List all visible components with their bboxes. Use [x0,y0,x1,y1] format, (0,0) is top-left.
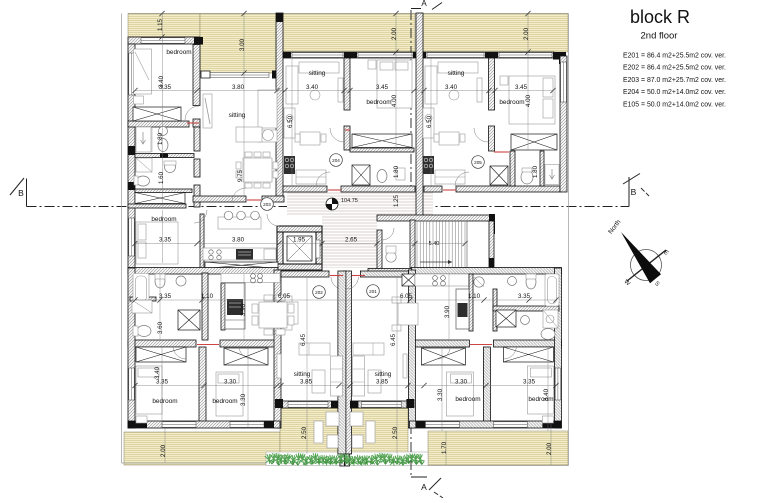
svg-text:9.75: 9.75 [237,169,244,182]
svg-text:1.25: 1.25 [393,194,400,207]
svg-text:bedroom: bedroom [152,398,177,405]
svg-text:6.50: 6.50 [287,115,294,128]
svg-text:bedroom: bedroom [151,216,176,223]
svg-text:1.70: 1.70 [441,441,448,454]
svg-text:sitting: sitting [375,371,392,378]
svg-text:B: B [631,187,637,197]
svg-text:2.00: 2.00 [546,442,553,455]
svg-text:A: A [421,0,427,8]
svg-text:bedroom: bedroom [499,99,524,106]
svg-text:3.30: 3.30 [455,379,468,386]
svg-text:3.40: 3.40 [154,366,161,379]
svg-text:sitting: sitting [309,70,326,77]
svg-text:1.60: 1.60 [158,171,165,184]
svg-text:bedroom: bedroom [166,49,191,56]
svg-text:3.40: 3.40 [445,84,458,91]
svg-text:4.00: 4.00 [391,94,398,107]
svg-text:6.05: 6.05 [400,293,413,300]
svg-text:B: B [18,188,24,198]
svg-text:1.10: 1.10 [468,293,481,300]
svg-text:2.00: 2.00 [391,27,398,40]
svg-text:205: 205 [474,160,482,165]
svg-text:E202 = 86.4 m2+25.5m2 cov. ver: E202 = 86.4 m2+25.5m2 cov. ver. [623,65,726,72]
svg-text:bedroom: bedroom [455,396,480,403]
svg-text:6.45: 6.45 [300,333,307,346]
svg-text:201: 201 [369,289,377,294]
svg-text:3.30: 3.30 [224,379,237,386]
svg-text:3.45: 3.45 [376,84,389,91]
svg-text:3.30: 3.30 [437,388,444,401]
svg-text:3.30: 3.30 [240,393,247,406]
svg-text:E203 = 87.0 m2+25.7m2 cov. ver: E203 = 87.0 m2+25.7m2 cov. ver. [623,77,726,84]
svg-text:E105 = 50.0 m2+14.0m2 cov. ver: E105 = 50.0 m2+14.0m2 cov. ver. [623,101,726,108]
svg-text:2.50: 2.50 [301,426,308,439]
svg-text:3.80: 3.80 [232,237,245,244]
svg-text:202: 202 [315,290,323,295]
svg-text:203: 203 [263,202,271,207]
svg-text:1.10: 1.10 [201,293,214,300]
svg-text:A: A [421,482,427,492]
svg-text:bedroom: bedroom [528,396,553,403]
svg-text:3.35: 3.35 [518,293,531,300]
svg-text:3.00: 3.00 [239,38,246,51]
svg-text:1.80: 1.80 [393,165,400,178]
svg-text:3.45: 3.45 [515,84,528,91]
svg-text:3.60: 3.60 [157,321,164,334]
svg-text:6.50: 6.50 [426,115,433,128]
svg-text:2.00: 2.00 [160,444,167,457]
svg-text:3.90: 3.90 [444,305,451,318]
svg-text:1.80: 1.80 [157,132,164,145]
svg-text:3.35: 3.35 [159,237,172,244]
svg-text:104.75: 104.75 [341,198,358,204]
svg-text:4.00: 4.00 [525,94,532,107]
svg-text:3.80: 3.80 [232,84,245,91]
svg-text:5.40: 5.40 [429,241,440,247]
svg-text:sitting: sitting [229,112,246,119]
svg-text:1.15: 1.15 [157,18,164,31]
svg-text:2.50: 2.50 [392,426,399,439]
svg-text:E201 = 86.4 m2+25.5m2 cov. ver: E201 = 86.4 m2+25.5m2 cov. ver. [623,53,726,60]
svg-text:sitting: sitting [448,70,465,77]
svg-text:E204 = 50.0 m2+14.0m2 cov. ver: E204 = 50.0 m2+14.0m2 cov. ver. [623,89,726,96]
svg-text:1.80: 1.80 [532,165,539,178]
svg-text:6.45: 6.45 [390,333,397,346]
svg-text:3.40: 3.40 [306,84,319,91]
svg-text:1.95: 1.95 [293,237,306,244]
svg-text:3.35: 3.35 [523,379,536,386]
svg-text:3.40: 3.40 [158,75,165,88]
svg-text:3.35: 3.35 [159,293,172,300]
svg-text:6.05: 6.05 [278,293,291,300]
svg-text:bedroom: bedroom [366,99,391,106]
svg-text:2.65: 2.65 [345,237,358,244]
svg-text:2.00: 2.00 [523,27,530,40]
svg-text:2nd floor: 2nd floor [641,31,678,42]
svg-text:3.85: 3.85 [300,379,313,386]
svg-text:204: 204 [332,158,340,163]
svg-text:block R: block R [630,7,690,27]
svg-text:3.85: 3.85 [376,379,389,386]
svg-text:sitting: sitting [294,371,311,378]
svg-text:bedroom: bedroom [212,398,237,405]
svg-text:3.90: 3.90 [240,303,247,316]
